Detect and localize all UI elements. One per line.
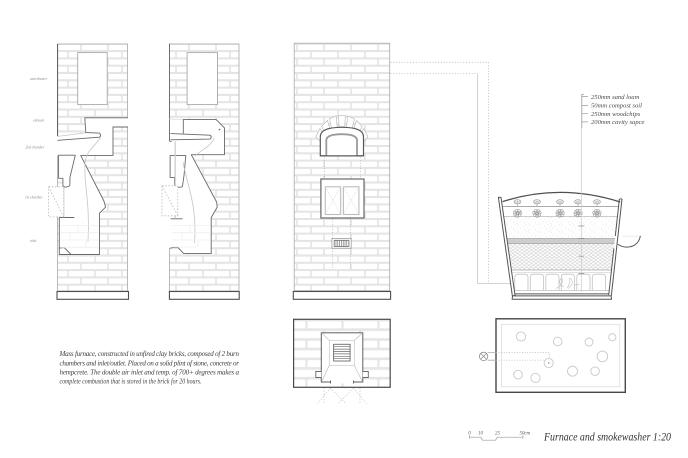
svg-text:1st chamber: 1st chamber: [25, 195, 43, 199]
svg-text:complete combustion that is st: complete combustion that is stored in th…: [60, 378, 202, 386]
svg-text:200mm cavity sapce: 200mm cavity sapce: [591, 119, 645, 126]
svg-text:hempcrete. The double air inle: hempcrete. The double air inlet and temp…: [60, 368, 240, 376]
svg-text:chambers and inlet/outlet. Pla: chambers and inlet/outlet. Placed on a s…: [60, 359, 240, 367]
svg-text:waterheater: waterheater: [30, 77, 48, 81]
svg-text:50cm: 50cm: [520, 431, 531, 436]
svg-text:50mm compost soil: 50mm compost soil: [591, 103, 642, 110]
svg-text:25: 25: [495, 431, 500, 436]
svg-text:250mm woodchips: 250mm woodchips: [591, 111, 641, 118]
svg-text:250mm sand loam: 250mm sand loam: [591, 94, 640, 101]
svg-text:2nd chamber: 2nd chamber: [26, 145, 45, 149]
svg-text:inlet: inlet: [30, 239, 37, 243]
svg-text:Furnace and smokewasher 1:20: Furnace and smokewasher 1:20: [543, 430, 671, 444]
svg-text:10: 10: [478, 431, 483, 436]
svg-text:Mass furnace, constructed in u: Mass furnace, constructed in unfired cla…: [59, 350, 240, 358]
svg-text:exhaust: exhaust: [33, 118, 45, 122]
